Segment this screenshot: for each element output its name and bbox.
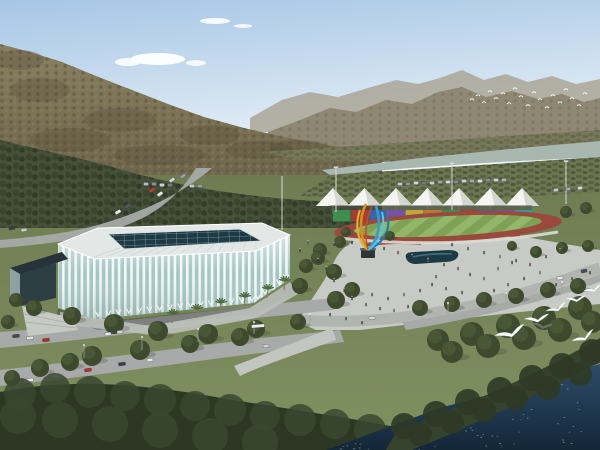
forest-canopy bbox=[42, 402, 78, 438]
tree-highlight bbox=[199, 325, 211, 337]
tree-highlight bbox=[513, 327, 528, 342]
person-head bbox=[469, 272, 470, 273]
car bbox=[502, 178, 507, 181]
person-head bbox=[419, 288, 420, 289]
water-sparkle bbox=[567, 389, 569, 390]
person bbox=[499, 255, 500, 258]
car bbox=[190, 184, 195, 187]
tree-highlight bbox=[232, 329, 243, 340]
person bbox=[483, 251, 484, 254]
person-head bbox=[351, 240, 352, 241]
person-head bbox=[343, 288, 344, 289]
tree-highlight bbox=[83, 347, 95, 359]
person bbox=[343, 289, 344, 292]
person bbox=[379, 307, 380, 310]
car bbox=[144, 182, 149, 185]
car bbox=[565, 187, 570, 191]
water-sparkle bbox=[563, 440, 565, 441]
shore-canopy bbox=[472, 398, 496, 422]
person-head bbox=[467, 246, 468, 247]
person-head bbox=[515, 258, 516, 259]
water-sparkle bbox=[518, 432, 520, 433]
cloud bbox=[115, 58, 141, 66]
person-head bbox=[397, 250, 398, 251]
water-sparkle bbox=[563, 442, 565, 443]
person-head bbox=[545, 254, 546, 255]
car bbox=[160, 183, 165, 186]
person-head bbox=[367, 242, 368, 243]
person-head bbox=[451, 242, 452, 243]
tree-highlight bbox=[5, 371, 15, 381]
car bbox=[398, 182, 403, 185]
tree-highlight bbox=[549, 319, 564, 334]
person bbox=[329, 313, 330, 316]
person-head bbox=[393, 308, 394, 309]
person-head bbox=[387, 296, 388, 297]
car bbox=[21, 228, 27, 232]
person bbox=[351, 241, 352, 244]
car bbox=[9, 226, 15, 230]
water-sparkle bbox=[569, 432, 571, 433]
person bbox=[435, 275, 436, 278]
car bbox=[470, 179, 475, 182]
shore-canopy bbox=[568, 362, 592, 386]
car bbox=[406, 182, 411, 185]
hill-patch bbox=[30, 128, 110, 152]
car bbox=[446, 180, 451, 183]
water-sparkle bbox=[355, 443, 357, 444]
floodlight-head bbox=[564, 160, 568, 162]
person bbox=[345, 317, 346, 320]
person bbox=[461, 291, 462, 294]
person-head bbox=[333, 278, 334, 279]
car bbox=[577, 186, 582, 190]
water-sparkle bbox=[491, 436, 493, 437]
car bbox=[369, 316, 375, 320]
person-head bbox=[493, 288, 494, 289]
person-head bbox=[555, 282, 556, 283]
lamppost-head bbox=[309, 313, 311, 315]
tree-highlight bbox=[293, 279, 303, 289]
person bbox=[431, 283, 432, 286]
screenshot-root bbox=[0, 0, 600, 450]
person bbox=[467, 247, 468, 250]
tree-highlight bbox=[386, 231, 392, 237]
person bbox=[523, 277, 524, 280]
car bbox=[438, 180, 443, 183]
water-sparkle bbox=[561, 384, 563, 385]
person bbox=[365, 303, 366, 306]
water-sparkle bbox=[343, 446, 345, 447]
forest-canopy bbox=[110, 381, 140, 411]
person-head bbox=[333, 242, 334, 243]
scene-svg bbox=[0, 0, 600, 450]
person-head bbox=[307, 240, 308, 241]
car bbox=[478, 179, 483, 182]
water-sparkle bbox=[353, 448, 355, 449]
car bbox=[430, 181, 435, 184]
person-head bbox=[483, 250, 484, 251]
person bbox=[529, 263, 530, 266]
person-head bbox=[407, 304, 408, 305]
lamppost-head bbox=[253, 321, 255, 323]
person bbox=[299, 249, 300, 252]
car bbox=[152, 182, 157, 185]
person bbox=[511, 261, 512, 264]
lamppost-head bbox=[505, 292, 507, 294]
tree-highlight bbox=[291, 315, 301, 325]
water-sparkle bbox=[482, 434, 484, 435]
tree-highlight bbox=[64, 308, 75, 319]
tree-highlight bbox=[531, 246, 538, 253]
water-sparkle bbox=[486, 446, 488, 447]
person bbox=[325, 267, 326, 270]
car bbox=[454, 180, 459, 183]
person bbox=[571, 277, 572, 280]
water-sparkle bbox=[340, 448, 342, 449]
water-sparkle bbox=[513, 444, 515, 445]
car bbox=[12, 334, 19, 338]
car bbox=[422, 181, 427, 184]
tree-highlight bbox=[312, 252, 321, 261]
tree-highlight bbox=[327, 265, 337, 275]
person bbox=[497, 267, 498, 270]
person-head bbox=[329, 312, 330, 313]
tree-highlight bbox=[582, 312, 596, 326]
person bbox=[555, 283, 556, 286]
tree-highlight bbox=[300, 260, 309, 269]
water-sparkle bbox=[465, 431, 467, 432]
person bbox=[507, 283, 508, 286]
tree-highlight bbox=[583, 240, 590, 247]
person bbox=[443, 263, 444, 266]
tree-highlight bbox=[509, 289, 519, 299]
person-head bbox=[523, 276, 524, 277]
shore-canopy bbox=[504, 386, 528, 410]
person-head bbox=[317, 258, 318, 259]
person-head bbox=[529, 262, 530, 263]
cloud bbox=[234, 24, 252, 28]
tree-highlight bbox=[182, 336, 193, 347]
person bbox=[317, 259, 318, 262]
hill-patch bbox=[180, 125, 240, 145]
car bbox=[42, 338, 49, 342]
lamppost-head bbox=[197, 328, 199, 330]
tree-highlight bbox=[328, 292, 339, 303]
lamppost-head bbox=[83, 344, 85, 346]
tree-highlight bbox=[32, 360, 43, 371]
tree-highlight bbox=[413, 301, 423, 311]
tree-highlight bbox=[105, 315, 117, 327]
water-sparkle bbox=[523, 414, 525, 415]
tree-highlight bbox=[541, 283, 551, 293]
person-head bbox=[589, 270, 590, 271]
car bbox=[486, 178, 491, 181]
person-head bbox=[299, 248, 300, 249]
person-head bbox=[427, 258, 428, 259]
tree-highlight bbox=[508, 241, 514, 247]
tree-highlight bbox=[149, 322, 161, 334]
person bbox=[411, 255, 412, 258]
water-sparkle bbox=[531, 409, 533, 410]
person-head bbox=[507, 282, 508, 283]
forest-canopy bbox=[320, 409, 350, 439]
tree-highlight bbox=[345, 283, 355, 293]
floodlight-head bbox=[450, 162, 454, 164]
person bbox=[371, 293, 372, 296]
tree-highlight bbox=[342, 227, 348, 233]
person-head bbox=[351, 296, 352, 297]
car bbox=[553, 188, 558, 192]
forest-canopy bbox=[284, 404, 316, 436]
person bbox=[457, 267, 458, 270]
person bbox=[545, 255, 546, 258]
tree-highlight bbox=[581, 202, 588, 209]
hill-patch bbox=[114, 145, 206, 165]
person-head bbox=[461, 290, 462, 291]
person bbox=[397, 251, 398, 254]
water-sparkle bbox=[573, 426, 575, 427]
tree-highlight bbox=[131, 341, 143, 353]
tree-highlight bbox=[561, 206, 568, 213]
person bbox=[477, 295, 478, 298]
person bbox=[307, 241, 308, 244]
water-sparkle bbox=[520, 419, 522, 420]
shore-canopy bbox=[408, 422, 432, 446]
person bbox=[469, 273, 470, 276]
lamppost-head bbox=[561, 281, 563, 283]
car bbox=[414, 181, 419, 184]
car bbox=[26, 336, 33, 340]
water-sparkle bbox=[564, 417, 566, 418]
person-head bbox=[383, 246, 384, 247]
water-sparkle bbox=[477, 435, 479, 436]
person bbox=[483, 277, 484, 280]
car bbox=[198, 184, 203, 187]
person-head bbox=[497, 266, 498, 267]
tree-highlight bbox=[428, 330, 442, 344]
person-head bbox=[445, 286, 446, 287]
car bbox=[494, 178, 499, 181]
forest-canopy bbox=[40, 373, 70, 403]
water-sparkle bbox=[470, 428, 472, 429]
person-head bbox=[457, 266, 458, 267]
person bbox=[407, 305, 408, 308]
water-sparkle bbox=[527, 418, 529, 419]
tree-highlight bbox=[10, 294, 19, 303]
person bbox=[559, 249, 560, 252]
person-head bbox=[365, 302, 366, 303]
tree-highlight bbox=[314, 244, 323, 253]
water-sparkle bbox=[577, 403, 579, 404]
cloud bbox=[186, 60, 206, 66]
forest-canopy bbox=[0, 398, 36, 434]
water-sparkle bbox=[359, 448, 361, 449]
water-sparkle bbox=[434, 446, 436, 447]
person bbox=[451, 243, 452, 246]
person bbox=[367, 243, 368, 246]
person bbox=[427, 259, 428, 262]
person bbox=[393, 309, 394, 312]
water-sparkle bbox=[557, 423, 559, 424]
lamppost-head bbox=[447, 302, 449, 304]
tree-highlight bbox=[62, 354, 73, 365]
tree-highlight bbox=[335, 236, 342, 243]
water-sparkle bbox=[499, 443, 501, 444]
car bbox=[147, 358, 153, 362]
floodlight-head bbox=[334, 166, 338, 168]
person bbox=[419, 289, 420, 292]
water-sparkle bbox=[571, 443, 573, 444]
forest-canopy bbox=[144, 384, 176, 416]
car bbox=[462, 179, 467, 182]
forest-canopy bbox=[180, 391, 210, 421]
shore-canopy bbox=[536, 376, 560, 400]
person-head bbox=[443, 262, 444, 263]
water-sparkle bbox=[471, 430, 473, 431]
water-sparkle bbox=[497, 436, 499, 437]
person-head bbox=[499, 254, 500, 255]
car bbox=[168, 183, 173, 186]
person bbox=[493, 289, 494, 292]
car bbox=[117, 330, 123, 334]
person-head bbox=[411, 254, 412, 255]
lamppost-head bbox=[141, 336, 143, 338]
person bbox=[403, 293, 404, 296]
tree-highlight bbox=[461, 323, 476, 338]
forest-canopy bbox=[142, 412, 178, 448]
tree-highlight bbox=[27, 301, 37, 311]
person bbox=[383, 247, 384, 250]
person bbox=[515, 259, 516, 262]
person bbox=[333, 279, 334, 282]
car bbox=[263, 344, 269, 348]
hill-patch bbox=[10, 78, 70, 102]
tree-highlight bbox=[2, 316, 11, 325]
person-head bbox=[431, 282, 432, 283]
person-head bbox=[559, 248, 560, 249]
cloud bbox=[200, 18, 230, 24]
person bbox=[361, 321, 362, 324]
person bbox=[333, 243, 334, 246]
forest-canopy bbox=[74, 376, 106, 408]
water-sparkle bbox=[360, 444, 362, 445]
water-sparkle bbox=[580, 431, 582, 432]
water-sparkle bbox=[501, 446, 503, 447]
car bbox=[105, 332, 111, 336]
person-head bbox=[483, 276, 484, 277]
hill-patch bbox=[84, 108, 156, 132]
person-head bbox=[571, 276, 572, 277]
person-head bbox=[345, 316, 346, 317]
person-head bbox=[435, 274, 436, 275]
water-sparkle bbox=[578, 409, 580, 410]
person bbox=[539, 271, 540, 274]
water-sparkle bbox=[480, 437, 482, 438]
person bbox=[589, 271, 590, 274]
tree-highlight bbox=[445, 297, 455, 307]
person-head bbox=[371, 292, 372, 293]
tree-highlight bbox=[477, 335, 492, 350]
water-sparkle bbox=[347, 445, 349, 446]
person-head bbox=[361, 320, 362, 321]
person-head bbox=[539, 270, 540, 271]
person bbox=[387, 297, 388, 300]
tree-highlight bbox=[497, 315, 512, 330]
person-head bbox=[511, 260, 512, 261]
shore-canopy bbox=[440, 410, 464, 434]
person bbox=[445, 287, 446, 290]
person bbox=[351, 297, 352, 300]
tree-highlight bbox=[442, 342, 456, 356]
forest-canopy bbox=[92, 406, 128, 442]
person-head bbox=[379, 306, 380, 307]
person-head bbox=[403, 292, 404, 293]
water-sparkle bbox=[512, 419, 514, 420]
person-head bbox=[325, 266, 326, 267]
person-head bbox=[477, 294, 478, 295]
